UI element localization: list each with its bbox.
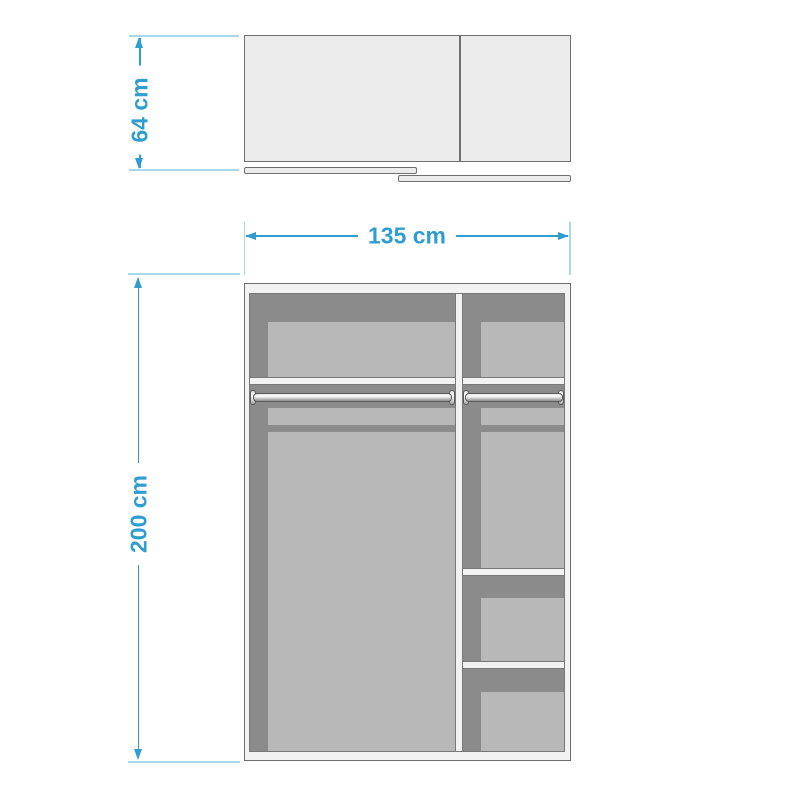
extension-line <box>244 222 246 275</box>
middle-storage-panel <box>481 598 564 661</box>
top-view-door-partition <box>459 36 461 161</box>
extension-line <box>128 273 240 275</box>
upper-back-panel <box>268 322 455 377</box>
extension-line <box>569 222 571 275</box>
hanging-space-panel <box>268 432 455 751</box>
hanging-rod <box>253 393 452 402</box>
extension-line <box>129 169 239 171</box>
upper-back-panel <box>481 322 564 377</box>
arrow-up-icon <box>135 37 143 48</box>
extension-line <box>128 761 240 763</box>
wardrobe-interior <box>249 293 565 752</box>
top-shelf <box>463 377 564 385</box>
arrow-down-icon <box>134 749 142 760</box>
rod-back-strip <box>268 408 455 425</box>
height-dimension-label: 200 cm <box>123 463 154 565</box>
middle-shelf <box>463 568 564 576</box>
depth-dimension-label: 64 cm <box>125 65 156 154</box>
upper-storage-panel <box>481 432 564 568</box>
wardrobe-dimension-diagram: 64 cm 135 cm 200 cm <box>0 0 800 800</box>
arrow-right-icon <box>558 232 569 240</box>
arrow-up-icon <box>134 277 142 288</box>
wardrobe-frame <box>244 283 571 761</box>
extension-line <box>129 35 239 37</box>
width-dimension-label: 135 cm <box>358 221 456 252</box>
sliding-door-right <box>398 175 571 182</box>
hanging-rod <box>465 393 563 402</box>
top-shelf <box>250 377 455 385</box>
lower-shelf <box>463 661 564 669</box>
rod-back-strip <box>481 408 564 425</box>
center-divider <box>455 294 463 751</box>
sliding-door-left <box>244 167 417 174</box>
top-view-cabinet <box>244 35 571 162</box>
arrow-left-icon <box>245 232 256 240</box>
lower-storage-panel <box>481 692 564 751</box>
arrow-down-icon <box>135 158 143 169</box>
